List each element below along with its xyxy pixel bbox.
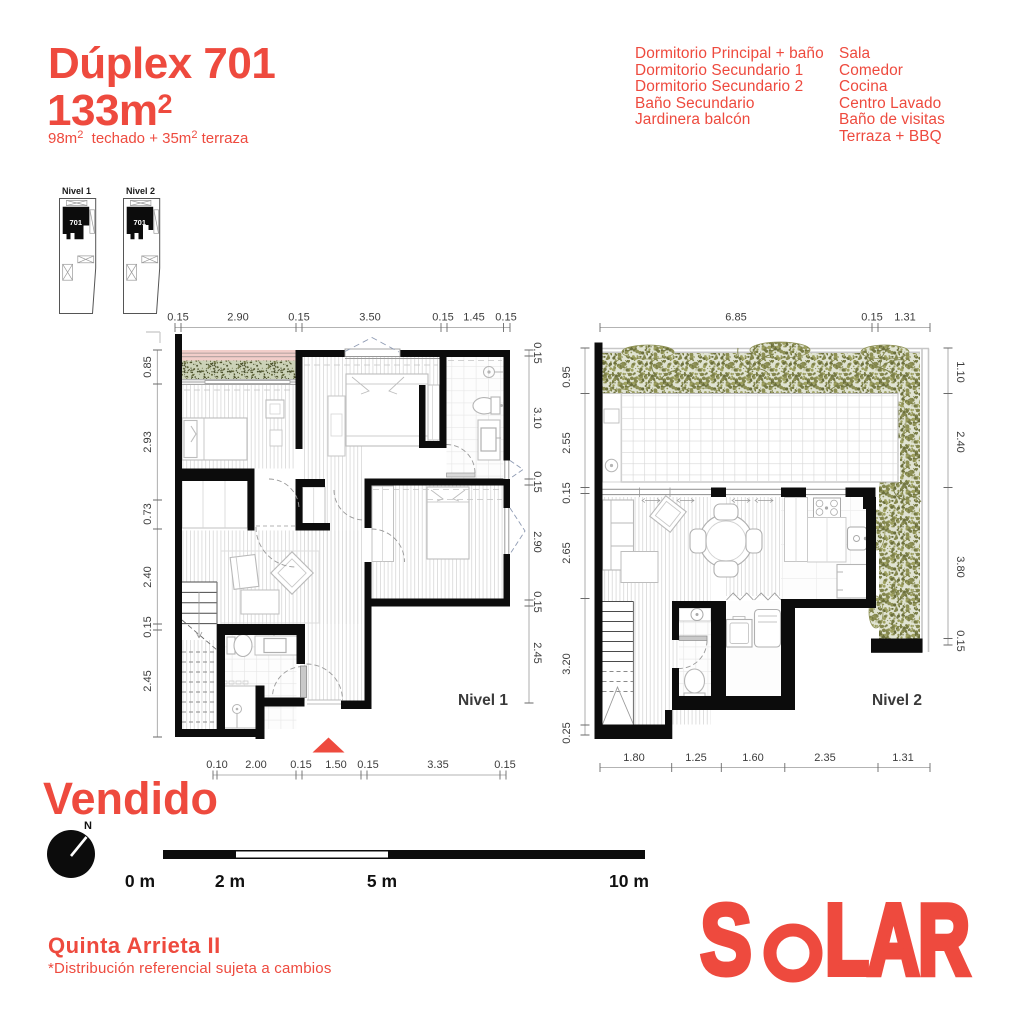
svg-text:S: S (700, 895, 752, 995)
svg-text:0.15: 0.15 (142, 616, 154, 637)
svg-text:3.20: 3.20 (561, 653, 573, 674)
svg-text:1.31: 1.31 (892, 752, 913, 764)
svg-text:2 m: 2 m (215, 871, 245, 891)
svg-text:1.60: 1.60 (742, 752, 763, 764)
svg-text:0 m: 0 m (125, 871, 155, 891)
svg-text:Nivel 2: Nivel 2 (126, 186, 155, 196)
svg-text:701: 701 (134, 218, 147, 227)
svg-text:3.80: 3.80 (954, 556, 966, 577)
svg-text:0.73: 0.73 (142, 503, 154, 524)
svg-text:0.15: 0.15 (494, 759, 515, 771)
svg-text:0.15: 0.15 (495, 312, 516, 324)
svg-text:1.80: 1.80 (623, 752, 644, 764)
svg-text:3.50: 3.50 (359, 312, 380, 324)
svg-text:0.15: 0.15 (954, 630, 966, 651)
svg-text:0.15: 0.15 (167, 312, 188, 324)
svg-text:N: N (84, 820, 92, 832)
svg-text:2.55: 2.55 (561, 432, 573, 453)
svg-text:Nivel 1: Nivel 1 (62, 186, 91, 196)
svg-text:1.31: 1.31 (894, 312, 915, 324)
svg-text:3.10: 3.10 (531, 407, 543, 428)
svg-text:0.85: 0.85 (142, 356, 154, 377)
svg-text:0.15: 0.15 (432, 312, 453, 324)
svg-text:Nivel 2: Nivel 2 (872, 692, 922, 709)
svg-text:0.10: 0.10 (206, 759, 227, 771)
svg-text:2.65: 2.65 (561, 542, 573, 563)
svg-text:0.15: 0.15 (531, 342, 543, 363)
svg-text:0.15: 0.15 (861, 312, 882, 324)
svg-text:0.15: 0.15 (561, 482, 573, 503)
svg-text:0.15: 0.15 (290, 759, 311, 771)
svg-text:1.45: 1.45 (463, 312, 484, 324)
svg-text:1.50: 1.50 (325, 759, 346, 771)
svg-text:1.10: 1.10 (954, 361, 966, 382)
svg-text:701: 701 (70, 218, 83, 227)
svg-text:0.15: 0.15 (288, 312, 309, 324)
svg-text:2.40: 2.40 (954, 431, 966, 452)
svg-text:2.00: 2.00 (245, 759, 266, 771)
svg-text:10 m: 10 m (609, 871, 649, 891)
svg-text:LAR: LAR (825, 895, 969, 995)
svg-text:5 m: 5 m (367, 871, 397, 891)
svg-text:2.45: 2.45 (142, 670, 154, 691)
svg-text:0.95: 0.95 (561, 366, 573, 387)
svg-text:6.85: 6.85 (725, 312, 746, 324)
svg-text:3.35: 3.35 (427, 759, 448, 771)
svg-text:2.35: 2.35 (814, 752, 835, 764)
svg-text:0.25: 0.25 (561, 722, 573, 743)
svg-text:0.15: 0.15 (531, 471, 543, 492)
svg-text:2.40: 2.40 (142, 566, 154, 587)
svg-text:Nivel 1: Nivel 1 (458, 692, 508, 709)
svg-text:2.90: 2.90 (227, 312, 248, 324)
svg-text:1.25: 1.25 (685, 752, 706, 764)
svg-text:2.45: 2.45 (531, 642, 543, 663)
svg-text:2.90: 2.90 (531, 531, 543, 552)
svg-text:2.93: 2.93 (142, 431, 154, 452)
svg-text:0.15: 0.15 (357, 759, 378, 771)
svg-text:0.15: 0.15 (531, 591, 543, 612)
